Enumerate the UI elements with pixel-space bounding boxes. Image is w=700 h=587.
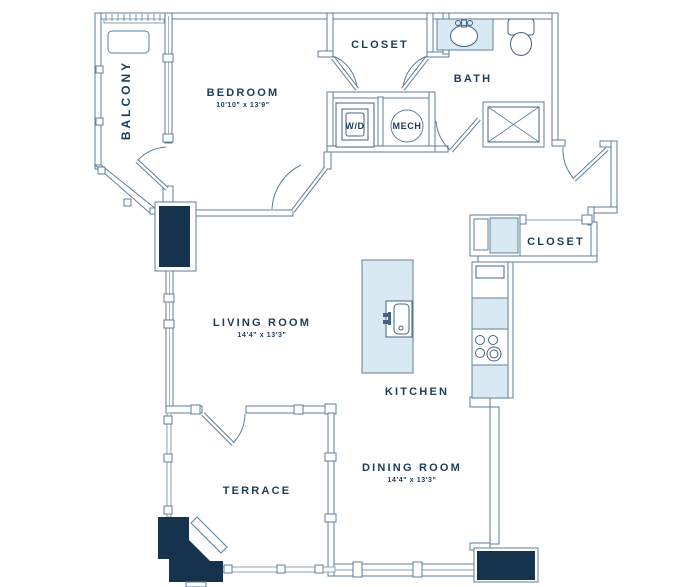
mech-label: MECH bbox=[393, 121, 422, 131]
bedroom-label: BEDROOM bbox=[207, 87, 280, 99]
terrace-door bbox=[203, 414, 245, 444]
cabinet bbox=[472, 262, 508, 298]
bath-label: BATH bbox=[454, 73, 493, 85]
closet-top-label: CLOSET bbox=[351, 39, 409, 51]
column-corner bbox=[158, 517, 223, 582]
stove bbox=[472, 329, 508, 365]
terrace-label: TERRACE bbox=[223, 485, 292, 497]
kitchen-label: KITCHEN bbox=[385, 386, 449, 398]
washer-dryer-label: W/D bbox=[345, 121, 364, 131]
column-right bbox=[477, 551, 535, 580]
toilet-bowl bbox=[511, 33, 532, 56]
dining-room-label: DINING ROOM bbox=[362, 462, 462, 474]
dining-room-dimensions: 14'4" x 13'3" bbox=[388, 477, 437, 484]
living-room-dimensions: 14'4" x 13'3" bbox=[238, 332, 287, 339]
bath-sink bbox=[451, 26, 478, 47]
kitchen-fixtures bbox=[362, 215, 520, 398]
refrigerator bbox=[470, 215, 520, 256]
column-left bbox=[159, 206, 190, 267]
closet-entry-label: CLOSET bbox=[527, 236, 585, 248]
balcony-door bbox=[137, 147, 167, 189]
window-mullions bbox=[163, 54, 336, 522]
balcony-label: BALCONY bbox=[119, 60, 133, 140]
balcony-planter bbox=[108, 31, 149, 53]
bedroom-dimensions: 10'10" x 13'9" bbox=[216, 102, 269, 109]
bedroom-door bbox=[272, 165, 326, 211]
living-room-label: LIVING ROOM bbox=[213, 317, 311, 329]
entry-door bbox=[563, 147, 607, 180]
counter-upper bbox=[472, 298, 508, 329]
floor-plan-svg: BALCONY BEDROOM 10'10" x 13'9" CLOSET BA… bbox=[0, 0, 700, 587]
floor-plan: BALCONY BEDROOM 10'10" x 13'9" CLOSET BA… bbox=[0, 0, 700, 587]
counter-lower bbox=[472, 365, 508, 398]
closet-doors bbox=[333, 56, 427, 89]
shower bbox=[483, 102, 544, 147]
kitchen-island bbox=[362, 260, 413, 373]
